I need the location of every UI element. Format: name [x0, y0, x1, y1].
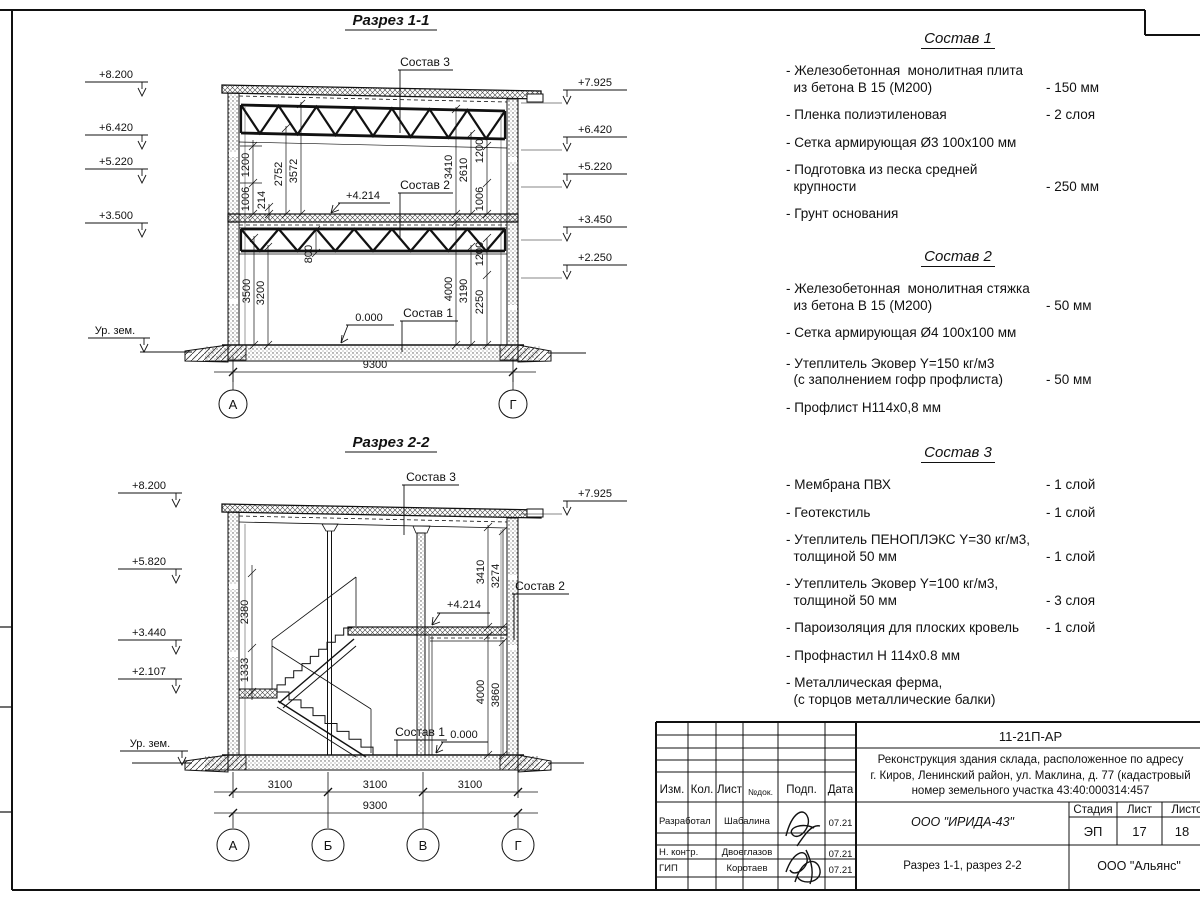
list-item: - Утеплитель Эковер Y=100 кг/м3, толщино… — [786, 576, 1130, 609]
mark-6420: +6.420 — [99, 122, 133, 134]
list-item: - Подготовка из песка средней крупности-… — [786, 162, 1130, 195]
bottom-dimension: 9300 А Г — [214, 357, 536, 418]
stamp-stage-value: ЭП — [1069, 824, 1117, 839]
item-name: - Утеплитель ПЕНОПЛЭКС Y=30 кг/м3, толщи… — [786, 532, 1046, 565]
item-name: - Железобетонная монолитная плита из бет… — [786, 63, 1046, 96]
stamp-project-description: Реконструкция здания склада, расположенн… — [856, 753, 1200, 800]
sostav1-label: Состав 1 — [395, 725, 445, 739]
mark-5820: +5.820 — [132, 556, 166, 568]
dim: 4000 — [443, 277, 455, 301]
item-name: - Геотекстиль — [786, 505, 1046, 522]
stamp-name: Двоеглазов — [716, 847, 778, 858]
axis-v: В — [419, 838, 428, 853]
list-item: - Геотекстиль- 1 слой — [786, 505, 1130, 522]
list-item: - Утеплитель ПЕНОПЛЭКС Y=30 кг/м3, толщи… — [786, 532, 1130, 565]
dim: 2752 — [273, 162, 285, 186]
elevation-marks-left: +8.200 +5.820 +3.440 +2.107 Ур. зем. — [118, 480, 188, 765]
staircase — [239, 577, 373, 757]
filing-ticks — [0, 627, 12, 812]
roof-truss — [239, 105, 507, 148]
mark-7925: +7.925 — [578, 488, 612, 500]
dim: 1200 — [240, 153, 252, 177]
item-name: - Профнастил Н 114х0.8 мм — [786, 648, 1046, 665]
sostav1-label: Состав 1 — [403, 306, 453, 320]
dim: 3860 — [490, 683, 502, 707]
stamp-name: Шабалина — [716, 816, 778, 827]
list-item: - Железобетонная монолитная стяжка из бе… — [786, 281, 1130, 314]
composition-1-title: Состав 1 — [786, 30, 1130, 47]
mark-2250: +2.250 — [578, 252, 612, 264]
stamp-stage-label: Стадия — [1069, 804, 1117, 816]
stamp-col-kol: Кол. — [688, 784, 716, 796]
item-value: - 250 мм — [1046, 179, 1130, 196]
item-name: - Утеплитель Эковер Y=150 кг/м3 (с запол… — [786, 356, 1046, 389]
stamp-col-ndok: №док. — [743, 787, 778, 797]
axis-g: Г — [509, 397, 516, 412]
dim: 1006 — [474, 187, 486, 211]
item-name: - Пароизоляция для плоских кровель — [786, 620, 1046, 637]
drawing-sheet: Разрез 1-1 — [0, 0, 1200, 900]
dim: 800 — [303, 245, 315, 263]
stamp-role: ГИП — [659, 863, 717, 874]
floor-truss — [239, 229, 507, 254]
mark-3450: +3.450 — [578, 214, 612, 226]
axis-b: Б — [324, 838, 333, 853]
dim: 2250 — [474, 290, 486, 314]
stamp-sheets-value: 18 — [1162, 824, 1200, 839]
stamp-doc-code: 11-21П-АР — [856, 729, 1200, 744]
dim: 3100 — [363, 779, 387, 791]
dim-total: 9300 — [363, 800, 387, 812]
item-name: - Мембрана ПВХ — [786, 477, 1046, 494]
dim: 3500 — [241, 279, 253, 303]
list-item: - Профлист Н114х0,8 мм — [786, 400, 1130, 417]
list-item: - Мембрана ПВХ- 1 слой — [786, 477, 1130, 494]
item-value: - 1 слой — [1046, 620, 1130, 637]
level-4214-label: +4.214 — [447, 599, 481, 611]
item-value: - 50 мм — [1046, 372, 1130, 389]
elevation-marks-right: +7.925 +6.420 +5.220 +3.450 +2.250 — [521, 77, 627, 279]
dim: 3572 — [288, 159, 300, 183]
dim: 3274 — [490, 564, 502, 588]
item-name: - Грунт основания — [786, 206, 1046, 223]
dim-total: 9300 — [363, 359, 387, 371]
dim: 2610 — [458, 158, 470, 182]
dim: 2380 — [239, 600, 251, 624]
list-item: - Утеплитель Эковер Y=150 кг/м3 (с запол… — [786, 356, 1130, 389]
stamp-date: 07.21 — [825, 865, 856, 876]
dim: 3410 — [443, 155, 455, 179]
stamp-name: Коротаев — [716, 863, 778, 874]
railing — [272, 577, 371, 753]
section-1-title: Разрез 1-1 — [352, 12, 429, 29]
dim: 3200 — [255, 281, 267, 305]
level-4214-label: +4.214 — [346, 190, 380, 202]
mark-3500: +3.500 — [99, 210, 133, 222]
signatures — [786, 812, 820, 884]
item-name: - Профлист Н114х0,8 мм — [786, 400, 1046, 417]
item-name: - Пленка полиэтиленовая — [786, 107, 1046, 124]
dim: 1006 — [240, 187, 252, 211]
ground-level-label: Ур. зем. — [130, 738, 170, 750]
composition-2-title: Состав 2 — [786, 248, 1130, 265]
dim: 3100 — [268, 779, 292, 791]
dim: 3100 — [458, 779, 482, 791]
dim: 3190 — [458, 279, 470, 303]
ground-level-label: Ур. зем. — [95, 325, 135, 337]
mark-7925: +7.925 — [578, 77, 612, 89]
stamp-role: Разработал — [659, 816, 717, 827]
list-item: - Пароизоляция для плоских кровель- 1 сл… — [786, 620, 1130, 637]
stamp-subtitle: Разрез 1-1, разрез 2-2 — [856, 860, 1069, 872]
section-1-drawing: Разрез 1-1 — [85, 12, 627, 418]
list-item: - Сетка армирующая Ø3 100х100 мм — [786, 135, 1130, 152]
stamp-sheet-value: 17 — [1117, 824, 1162, 839]
dim: 1200 — [474, 139, 486, 163]
mark-5220-r: +5.220 — [578, 161, 612, 173]
item-name: - Металлическая ферма, (с торцов металли… — [786, 675, 1046, 708]
signature-gip — [786, 850, 820, 884]
mark-6420-r: +6.420 — [578, 124, 612, 136]
signature-razrabotal — [786, 812, 820, 846]
dim: 214 — [256, 191, 268, 209]
stamp-date: 07.21 — [825, 818, 856, 829]
mark-3440: +3.440 — [132, 627, 166, 639]
axis-g: Г — [514, 838, 521, 853]
composition-list-3: Состав 3 - Мембрана ПВХ- 1 слой - Геотек… — [786, 444, 1130, 719]
roof-slab — [222, 504, 543, 528]
sostav3-label: Состав 3 — [406, 470, 456, 484]
list-item: - Железобетонная монолитная плита из бет… — [786, 63, 1130, 96]
item-value: - 2 слоя — [1046, 107, 1130, 124]
stamp-col-data: Дата — [825, 784, 856, 796]
item-name: - Подготовка из песка средней крупности — [786, 162, 1046, 195]
stamp-col-izm: Изм. — [656, 784, 688, 796]
level-0-label: 0.000 — [355, 312, 383, 324]
sostav2-label: Состав 2 — [515, 579, 565, 593]
item-value: - 50 мм — [1046, 298, 1130, 315]
item-value: - 1 слой — [1046, 549, 1130, 566]
mezzanine-slab — [348, 627, 507, 641]
item-name: - Утеплитель Эковер Y=100 кг/м3, толщино… — [786, 576, 1046, 609]
item-name: - Сетка армирующая Ø3 100х100 мм — [786, 135, 1046, 152]
list-item: - Профнастил Н 114х0.8 мм — [786, 648, 1130, 665]
list-item: - Сетка армирующая Ø4 100х100 мм — [786, 325, 1130, 342]
stamp-org: ООО "ИРИДА-43" — [856, 815, 1069, 829]
composition-list-2: Состав 2 - Железобетонная монолитная стя… — [786, 248, 1130, 427]
list-item: - Грунт основания — [786, 206, 1130, 223]
item-value: - 1 слой — [1046, 505, 1130, 522]
stamp-col-list: Лист — [716, 784, 743, 796]
ground-slab — [132, 755, 584, 772]
dim: 1200 — [474, 242, 486, 266]
stamp-sheet-label: Лист — [1117, 804, 1162, 816]
stamp-role: Н. контр. — [659, 847, 717, 858]
item-value: - 3 слоя — [1046, 593, 1130, 610]
mark-5220: +5.220 — [99, 156, 133, 168]
dim: 4000 — [475, 680, 487, 704]
list-item: - Металлическая ферма, (с торцов металли… — [786, 675, 1130, 708]
axis-a: А — [229, 397, 238, 412]
item-value: - 150 мм — [1046, 80, 1130, 97]
bottom-dimension: 3100 3100 3100 9300 А Б В Г — [214, 772, 538, 861]
section-2-drawing: Разрез 2-2 — [118, 434, 627, 861]
section-2-title: Разрез 2-2 — [352, 434, 430, 451]
sostav3-label: Состав 3 — [400, 55, 450, 69]
mark-2107: +2.107 — [132, 666, 166, 678]
mark-8200: +8.200 — [99, 69, 133, 81]
composition-list-1: Состав 1 - Железобетонная монолитная пли… — [786, 30, 1130, 234]
stamp-date: 07.21 — [825, 849, 856, 860]
stamp-col-podp: Подп. — [778, 784, 825, 796]
elevation-marks-left: +8.200 +6.420 +5.220 +3.500 Ур. зем. — [85, 69, 150, 352]
dim: 1333 — [239, 658, 251, 682]
stamp-sheets-label: Листов — [1162, 804, 1200, 816]
dim: 3410 — [475, 560, 487, 584]
list-item: - Пленка полиэтиленовая- 2 слоя — [786, 107, 1130, 124]
item-name: - Железобетонная монолитная стяжка из бе… — [786, 281, 1046, 314]
item-name: - Сетка армирующая Ø4 100х100 мм — [786, 325, 1046, 342]
mid-floor — [228, 214, 518, 228]
composition-3-title: Состав 3 — [786, 444, 1130, 461]
mark-8200: +8.200 — [132, 480, 166, 492]
columns — [322, 524, 432, 755]
level-0-label: 0.000 — [450, 729, 478, 741]
roof-slab — [222, 85, 543, 102]
item-value: - 1 слой — [1046, 477, 1130, 494]
axis-a: А — [229, 838, 238, 853]
stamp-company: ООО "Альянс" — [1069, 859, 1200, 873]
